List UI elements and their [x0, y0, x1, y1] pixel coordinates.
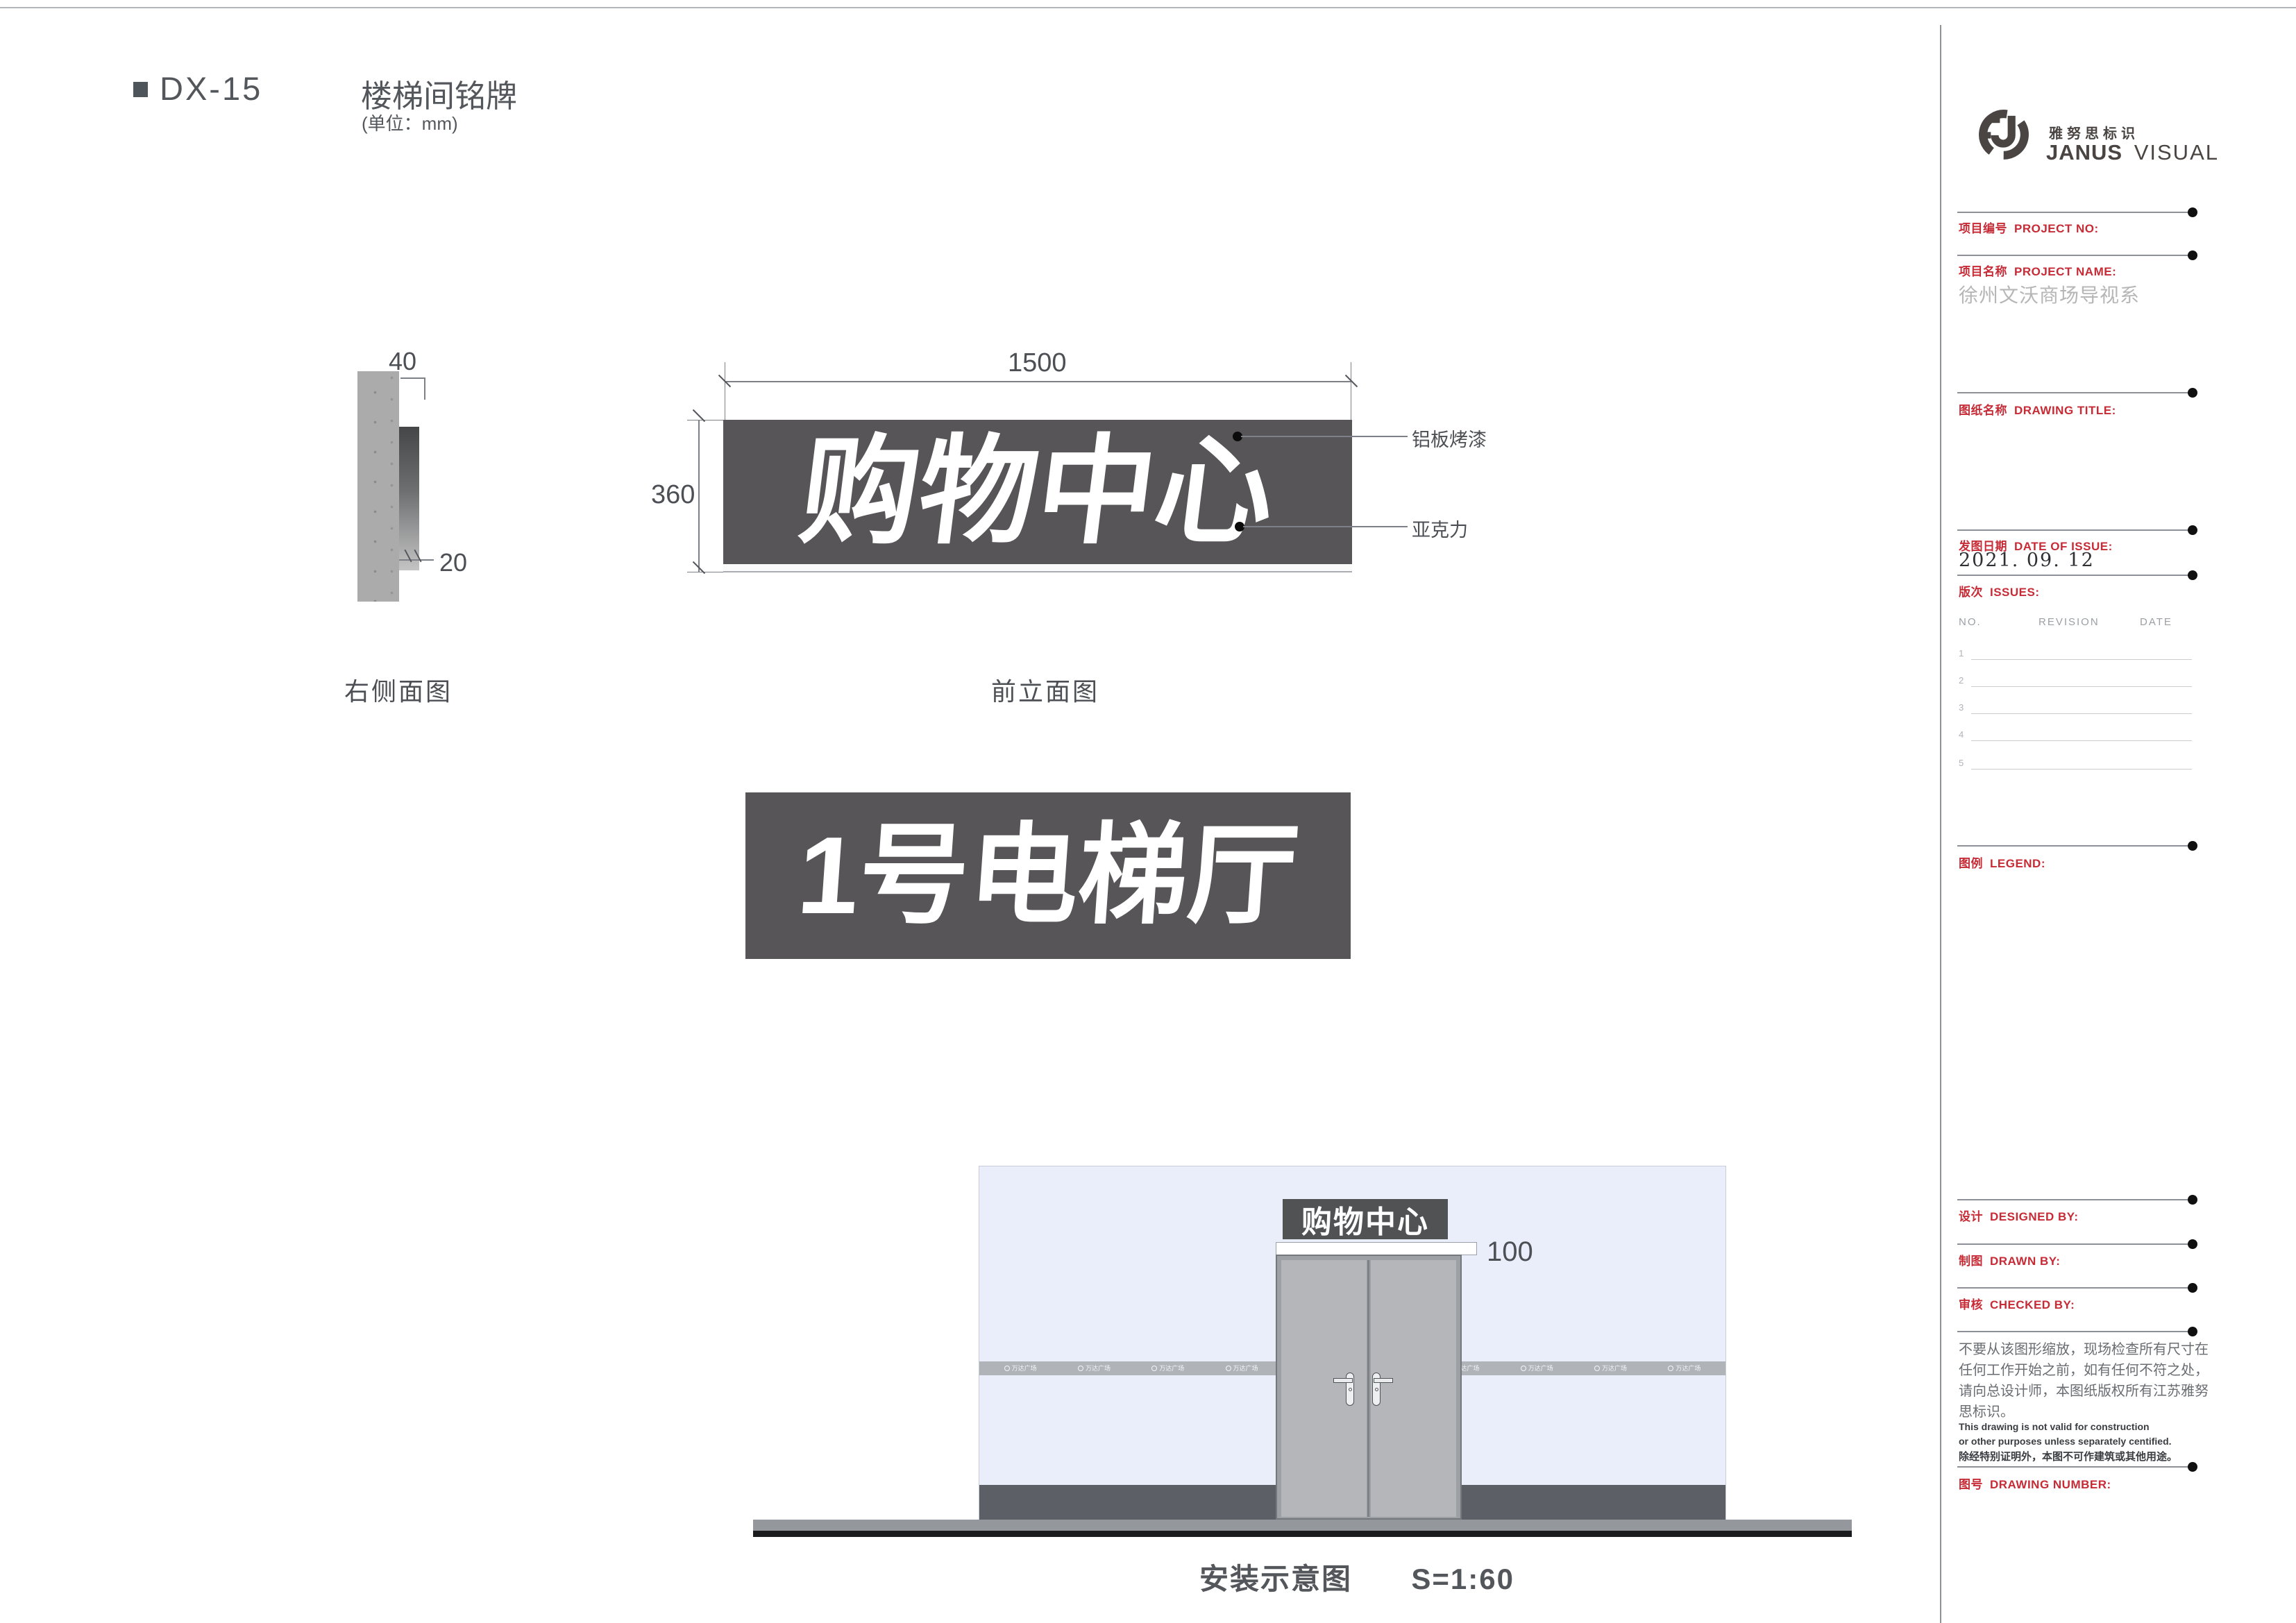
brand-en-light: VISUAL: [2134, 140, 2219, 164]
band-logo: 万达广场: [1594, 1366, 1627, 1372]
section-rule: [1957, 575, 2193, 576]
side-view-label: 右侧面图: [344, 672, 453, 708]
dim-line-height: [698, 420, 700, 572]
dim-thickness-line: [399, 559, 434, 561]
project-name-value: 徐州文沃商场导视系: [1959, 280, 2140, 308]
door-split-line: [1367, 1260, 1369, 1517]
disclaimer-cn2: 除经特别证明外，本图不可作建筑或其他用途。: [1959, 1449, 2177, 1463]
material-callout-bottom: 亚克力: [1412, 515, 1468, 542]
band-logo: 万达广场: [1078, 1366, 1111, 1372]
title-bullet-square: [133, 82, 148, 97]
page-top-rule: [0, 7, 2296, 8]
front-view-label: 前立面图: [991, 672, 1099, 708]
install-floor-edge: [753, 1531, 1852, 1537]
field-legend: 图例LEGEND:: [1959, 853, 2045, 871]
door-leaf-right: [1371, 1260, 1456, 1517]
dim-line-width: [725, 381, 1351, 382]
door-lintel: [1276, 1242, 1477, 1255]
section-rule: [1957, 529, 2193, 531]
side-view-wall-section: [357, 371, 399, 602]
field-checked-by: 审核CHECKED BY:: [1959, 1295, 2075, 1312]
issues-row-line: [1971, 686, 2192, 687]
section-rule: [1957, 212, 2193, 213]
side-view-sign-section: [399, 427, 419, 570]
disclaimer-en: This drawing is not valid for constructi…: [1959, 1420, 2172, 1449]
section-rule: [1957, 1331, 2193, 1332]
field-drawing-number: 图号DRAWING NUMBER:: [1959, 1475, 2111, 1492]
door-lever-right: [1374, 1378, 1393, 1383]
band-logo-ring-icon: [1078, 1366, 1083, 1371]
issues-col-date: DATE: [2140, 616, 2172, 628]
dim-thickness: 20: [439, 548, 467, 577]
band-logo: 万达广场: [1668, 1366, 1700, 1372]
section-rule: [1957, 845, 2193, 847]
door-keyhole-left: [1349, 1388, 1352, 1391]
install-caption-text: 安装示意图: [1199, 1563, 1352, 1595]
band-logo-ring-icon: [1521, 1366, 1526, 1371]
field-project-no: 项目编号PROJECT NO:: [1959, 219, 2099, 236]
disclaimer-en-line2: or other purposes unless separately cent…: [1959, 1434, 2172, 1449]
material-callout-top: 铝板烤漆: [1412, 425, 1487, 452]
band-logo-ring-icon: [1668, 1366, 1673, 1371]
issues-row-line: [1971, 740, 2192, 741]
field-project-name: 项目名称PROJECT NAME:: [1959, 262, 2116, 279]
front-sign-panel: 购物中心: [723, 420, 1352, 564]
install-dim: 100: [1487, 1237, 1533, 1268]
issues-row-num: 1: [1959, 648, 1964, 658]
band-logo-ring-icon: [1226, 1366, 1231, 1371]
panel-bottom-strip: [723, 564, 1352, 572]
dim-width: 1500: [1008, 348, 1067, 378]
band-logo: 万达广场: [1521, 1366, 1553, 1372]
brand-en-bold: JANUS: [2046, 140, 2122, 164]
brand-name-en: JANUS VISUAL: [2046, 140, 2219, 165]
issues-row-num: 3: [1959, 702, 1964, 713]
unit-note: (单位：mm): [362, 110, 458, 135]
install-sign-panel: 购物中心: [1283, 1199, 1448, 1239]
drawing-sheet: DX-15 楼梯间铭牌 (单位：mm) 40 20 右侧面图 1500 360 …: [0, 0, 2296, 1623]
section-rule: [1957, 1466, 2193, 1468]
field-drawing-title: 图纸名称DRAWING TITLE:: [1959, 400, 2116, 418]
issues-row-line: [1971, 659, 2192, 660]
section-rule: [1957, 1199, 2193, 1200]
brand-name-cn: 雅努思标识: [2049, 122, 2139, 142]
install-caption: 安装示意图 S=1:60: [1199, 1556, 1514, 1598]
issues-row-num: 5: [1959, 758, 1964, 768]
door-keyhole-right: [1375, 1388, 1378, 1391]
front-sign-text: 购物中心: [795, 433, 1281, 551]
install-scale: S=1:60: [1411, 1563, 1514, 1595]
sidebar-divider: [1940, 25, 1941, 1623]
dim-bracket-h: [400, 377, 425, 379]
install-sign-text: 购物中心: [1301, 1197, 1429, 1241]
ext-line: [1351, 362, 1351, 420]
section-rule: [1957, 255, 2193, 256]
janus-logo-icon: [1975, 105, 2033, 164]
section-rule: [1957, 392, 2193, 393]
band-logo-ring-icon: [1594, 1366, 1600, 1371]
issues-col-no: NO.: [1959, 616, 1982, 628]
field-issues: 版次ISSUES:: [1959, 582, 2040, 600]
section-rule: [1957, 1243, 2193, 1245]
drawing-code: DX-15: [160, 69, 262, 108]
elevator-hall-sign-text: 1号电梯厅: [795, 821, 1302, 931]
band-logo: 万达广场: [1226, 1366, 1258, 1372]
disclaimer-en-line1: This drawing is not valid for constructi…: [1959, 1420, 2172, 1434]
section-rule: [1957, 1287, 2193, 1289]
elevator-hall-sign-panel: 1号电梯厅: [745, 792, 1351, 959]
double-door: [1276, 1255, 1462, 1520]
field-drawn-by: 制图DRAWN BY:: [1959, 1251, 2060, 1268]
field-designed-by: 设计DESIGNED BY:: [1959, 1207, 2079, 1224]
band-logo-ring-icon: [1004, 1366, 1010, 1371]
band-logo: 万达广场: [1151, 1366, 1184, 1372]
issues-row-line: [1971, 769, 2192, 770]
dim-bracket-v: [424, 377, 425, 400]
issues-col-revision: REVISION: [2038, 616, 2100, 628]
door-lever-left: [1333, 1378, 1353, 1383]
disclaimer-cn: 不要从该图形缩放，现场检查所有尺寸在任何工作开始之前，如有任何不符之处，请向总设…: [1959, 1339, 2214, 1422]
leader-line: [1243, 526, 1408, 527]
dim-depth: 40: [389, 347, 416, 376]
issues-row-num: 4: [1959, 729, 1964, 740]
date-of-issue-value: 2021. 09. 12: [1959, 550, 2095, 571]
leader-line: [1241, 436, 1408, 437]
band-logo-ring-icon: [1151, 1366, 1157, 1371]
issues-row-num: 2: [1959, 675, 1964, 686]
dim-height: 360: [651, 480, 695, 510]
install-floor: [753, 1520, 1852, 1531]
ext-line: [725, 362, 725, 420]
band-logo: 万达广场: [1004, 1366, 1037, 1372]
issues-row-line: [1971, 713, 2192, 714]
